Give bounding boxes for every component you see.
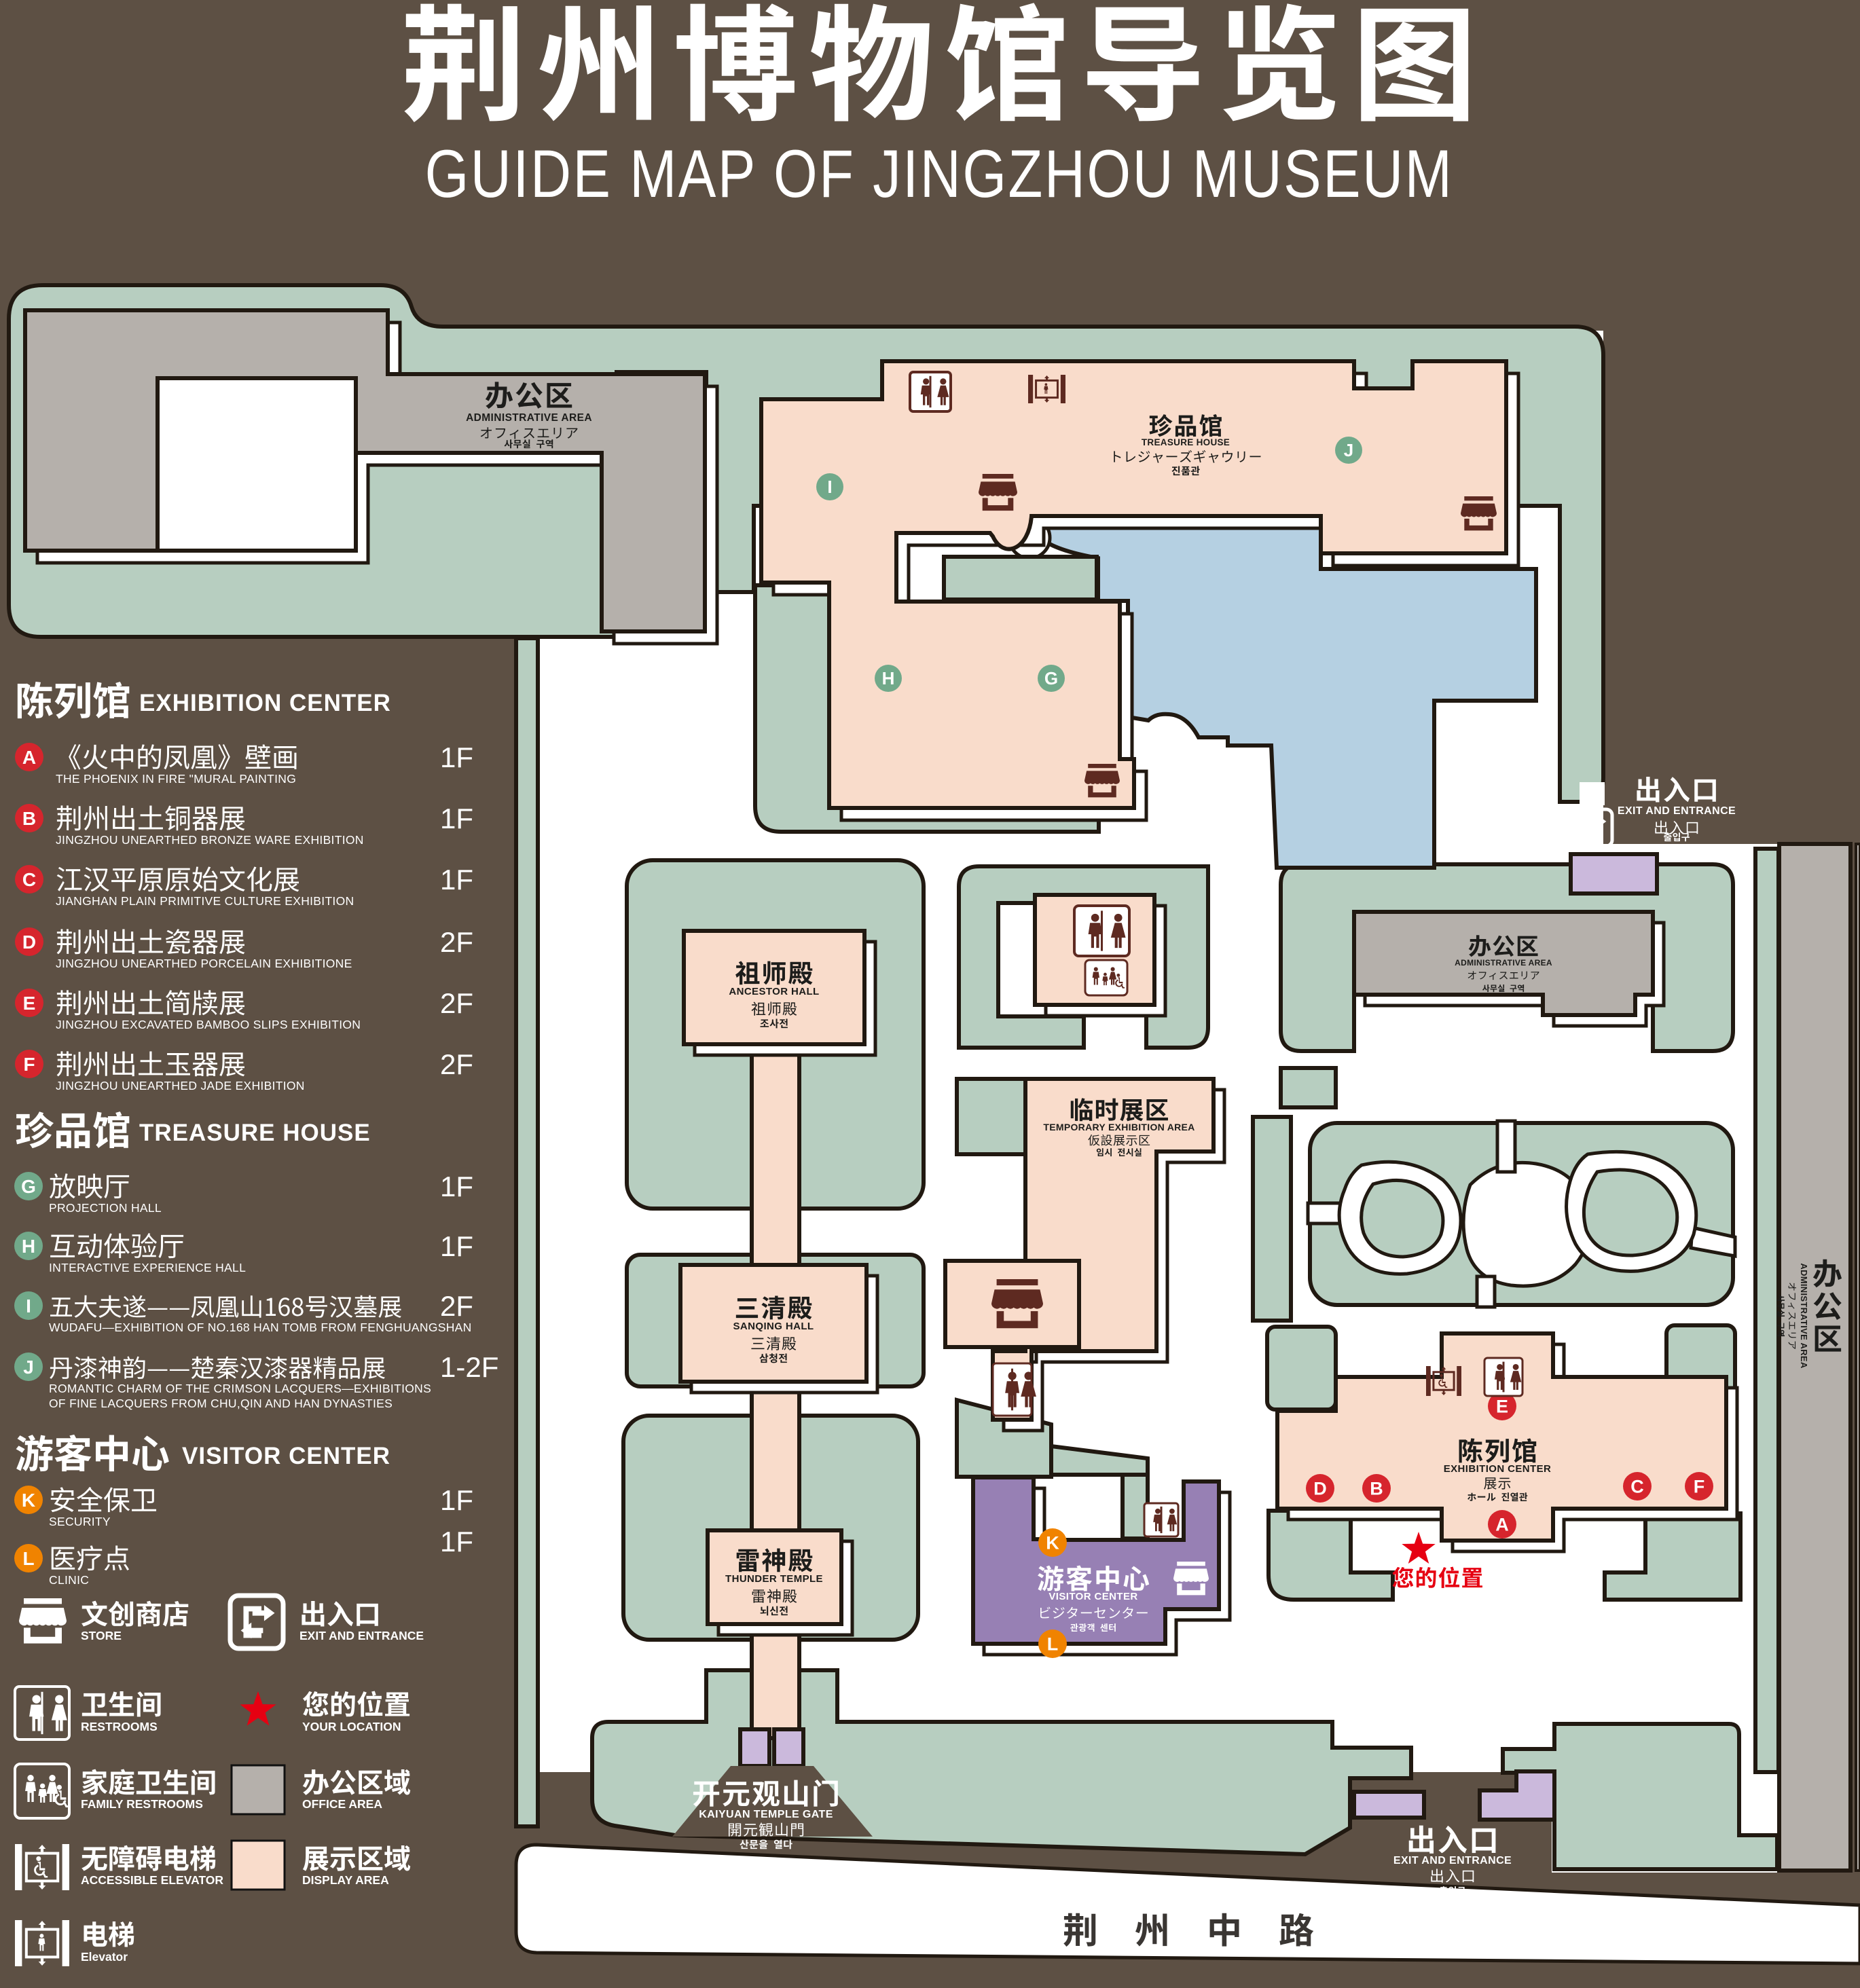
svg-text:F: F — [1694, 1476, 1705, 1496]
svg-text:GUIDE MAP OF JINGZHOU MUSEUM: GUIDE MAP OF JINGZHOU MUSEUM — [425, 136, 1454, 211]
svg-text:KAIYUAN TEMPLE GATE: KAIYUAN TEMPLE GATE — [699, 1809, 833, 1820]
svg-text:2F: 2F — [440, 987, 473, 1019]
svg-text:J: J — [23, 1357, 34, 1378]
svg-text:H: H — [22, 1236, 35, 1257]
svg-text:THUNDER TEMPLE: THUNDER TEMPLE — [725, 1573, 823, 1585]
svg-text:1F: 1F — [440, 803, 473, 834]
svg-text:CLINIC: CLINIC — [49, 1573, 89, 1587]
svg-text:PROJECTION HALL: PROJECTION HALL — [49, 1201, 162, 1215]
svg-text:ANCESTOR HALL: ANCESTOR HALL — [729, 986, 819, 997]
svg-text:K: K — [1046, 1532, 1059, 1553]
svg-text:D: D — [1313, 1478, 1327, 1498]
svg-text:1-2F: 1-2F — [440, 1351, 498, 1383]
svg-text:JIANGHAN PLAIN PRIMITIVE CULTU: JIANGHAN PLAIN PRIMITIVE CULTURE EXHIBIT… — [56, 894, 354, 908]
svg-text:VISITOR CENTER: VISITOR CENTER — [1048, 1591, 1137, 1602]
svg-text:I: I — [26, 1295, 31, 1317]
svg-text:1F: 1F — [440, 864, 473, 896]
svg-text:TREASURE HOUSE: TREASURE HOUSE — [139, 1120, 371, 1146]
svg-text:ADMINISTRATIVE AREA: ADMINISTRATIVE AREA — [1455, 958, 1552, 968]
svg-text:JINGZHOU UNEARTHED BRONZE WARE: JINGZHOU UNEARTHED BRONZE WARE EXHIBITIO… — [56, 833, 364, 847]
svg-text:JINGZHOU EXCAVATED BAMBOO SLIP: JINGZHOU EXCAVATED BAMBOO SLIPS EXHIBITI… — [56, 1018, 361, 1031]
svg-text:2F: 2F — [440, 1048, 473, 1080]
svg-text:1F: 1F — [440, 1526, 473, 1558]
svg-text:VISITOR CENTER: VISITOR CENTER — [182, 1443, 390, 1469]
svg-text:JINGZHOU UNEARTHED PORCELAIN E: JINGZHOU UNEARTHED PORCELAIN EXHIBITIONE — [56, 957, 352, 970]
svg-text:G: G — [1044, 668, 1058, 688]
svg-text:RESTROOMS: RESTROOMS — [81, 1720, 158, 1733]
svg-text:YOUR LOCATION: YOUR LOCATION — [302, 1720, 401, 1733]
svg-text:ADMINISTRATIVE AREA: ADMINISTRATIVE AREA — [466, 412, 592, 424]
svg-text:L: L — [1047, 1634, 1059, 1654]
svg-text:EXIT AND ENTRANCE: EXIT AND ENTRANCE — [1618, 805, 1736, 817]
svg-text:F: F — [23, 1054, 35, 1075]
svg-text:WUDAFU—EXHIBITION OF NO.168 HA: WUDAFU—EXHIBITION OF NO.168 HAN TOMB FRO… — [49, 1321, 472, 1334]
svg-text:E: E — [23, 993, 36, 1014]
svg-text:SANQING HALL: SANQING HALL — [733, 1321, 814, 1332]
svg-text:DISPLAY AREA: DISPLAY AREA — [302, 1873, 389, 1887]
svg-text:B: B — [22, 808, 36, 829]
svg-text:SECURITY: SECURITY — [49, 1515, 111, 1528]
svg-text:L: L — [22, 1548, 34, 1569]
svg-text:STORE: STORE — [81, 1629, 122, 1642]
svg-text:TEMPORARY EXHIBITION AREA: TEMPORARY EXHIBITION AREA — [1043, 1122, 1195, 1133]
svg-text:TREASURE HOUSE: TREASURE HOUSE — [1142, 437, 1230, 447]
svg-text:I: I — [827, 477, 832, 497]
svg-text:1F: 1F — [440, 1171, 473, 1202]
svg-text:THE PHOENIX IN FIRE "MURAL PAI: THE PHOENIX IN FIRE "MURAL PAINTING — [56, 772, 296, 786]
svg-text:FAMILY RESTROOMS: FAMILY RESTROOMS — [81, 1797, 203, 1811]
svg-text:EXHIBITION CENTER: EXHIBITION CENTER — [1444, 1463, 1551, 1475]
svg-text:C: C — [22, 869, 36, 890]
svg-text:2F: 2F — [440, 926, 473, 958]
svg-text:Elevator: Elevator — [81, 1950, 128, 1964]
svg-text:K: K — [22, 1490, 35, 1511]
svg-text:INTERACTIVE EXPERIENCE HALL: INTERACTIVE EXPERIENCE HALL — [49, 1261, 246, 1274]
svg-text:E: E — [1496, 1396, 1508, 1416]
svg-text:OFFICE AREA: OFFICE AREA — [302, 1797, 382, 1811]
svg-text:JINGZHOU UNEARTHED JADE EXHIBI: JINGZHOU UNEARTHED JADE EXHIBITION — [56, 1079, 305, 1092]
svg-text:EXHIBITION CENTER: EXHIBITION CENTER — [139, 690, 391, 716]
svg-text:ADMINISTRATIVE AREA: ADMINISTRATIVE AREA — [1799, 1263, 1809, 1369]
svg-text:H: H — [882, 668, 895, 688]
svg-text:D: D — [22, 932, 36, 953]
svg-text:1F: 1F — [440, 1484, 473, 1516]
svg-text:OF FINE LACQUERS FROM CHU,QIN: OF FINE LACQUERS FROM CHU,QIN AND HAN DY… — [49, 1397, 393, 1410]
svg-text:ROMANTIC CHARM OF THE CRIMSON: ROMANTIC CHARM OF THE CRIMSON LACQUERS—E… — [49, 1382, 431, 1395]
svg-text:2F: 2F — [440, 1290, 473, 1322]
svg-text:B: B — [1370, 1478, 1383, 1498]
svg-text:EXIT AND ENTRANCE: EXIT AND ENTRANCE — [299, 1629, 424, 1642]
svg-text:ACCESSIBLE ELEVATOR: ACCESSIBLE ELEVATOR — [81, 1873, 223, 1887]
svg-text:A: A — [1495, 1514, 1509, 1534]
svg-text:1F: 1F — [440, 1230, 473, 1262]
svg-text:J: J — [1344, 440, 1353, 460]
svg-text:A: A — [22, 747, 36, 768]
svg-text:1F: 1F — [440, 741, 473, 773]
svg-text:G: G — [21, 1176, 36, 1197]
svg-text:C: C — [1630, 1476, 1644, 1496]
svg-text:EXIT AND ENTRANCE: EXIT AND ENTRANCE — [1393, 1855, 1512, 1866]
